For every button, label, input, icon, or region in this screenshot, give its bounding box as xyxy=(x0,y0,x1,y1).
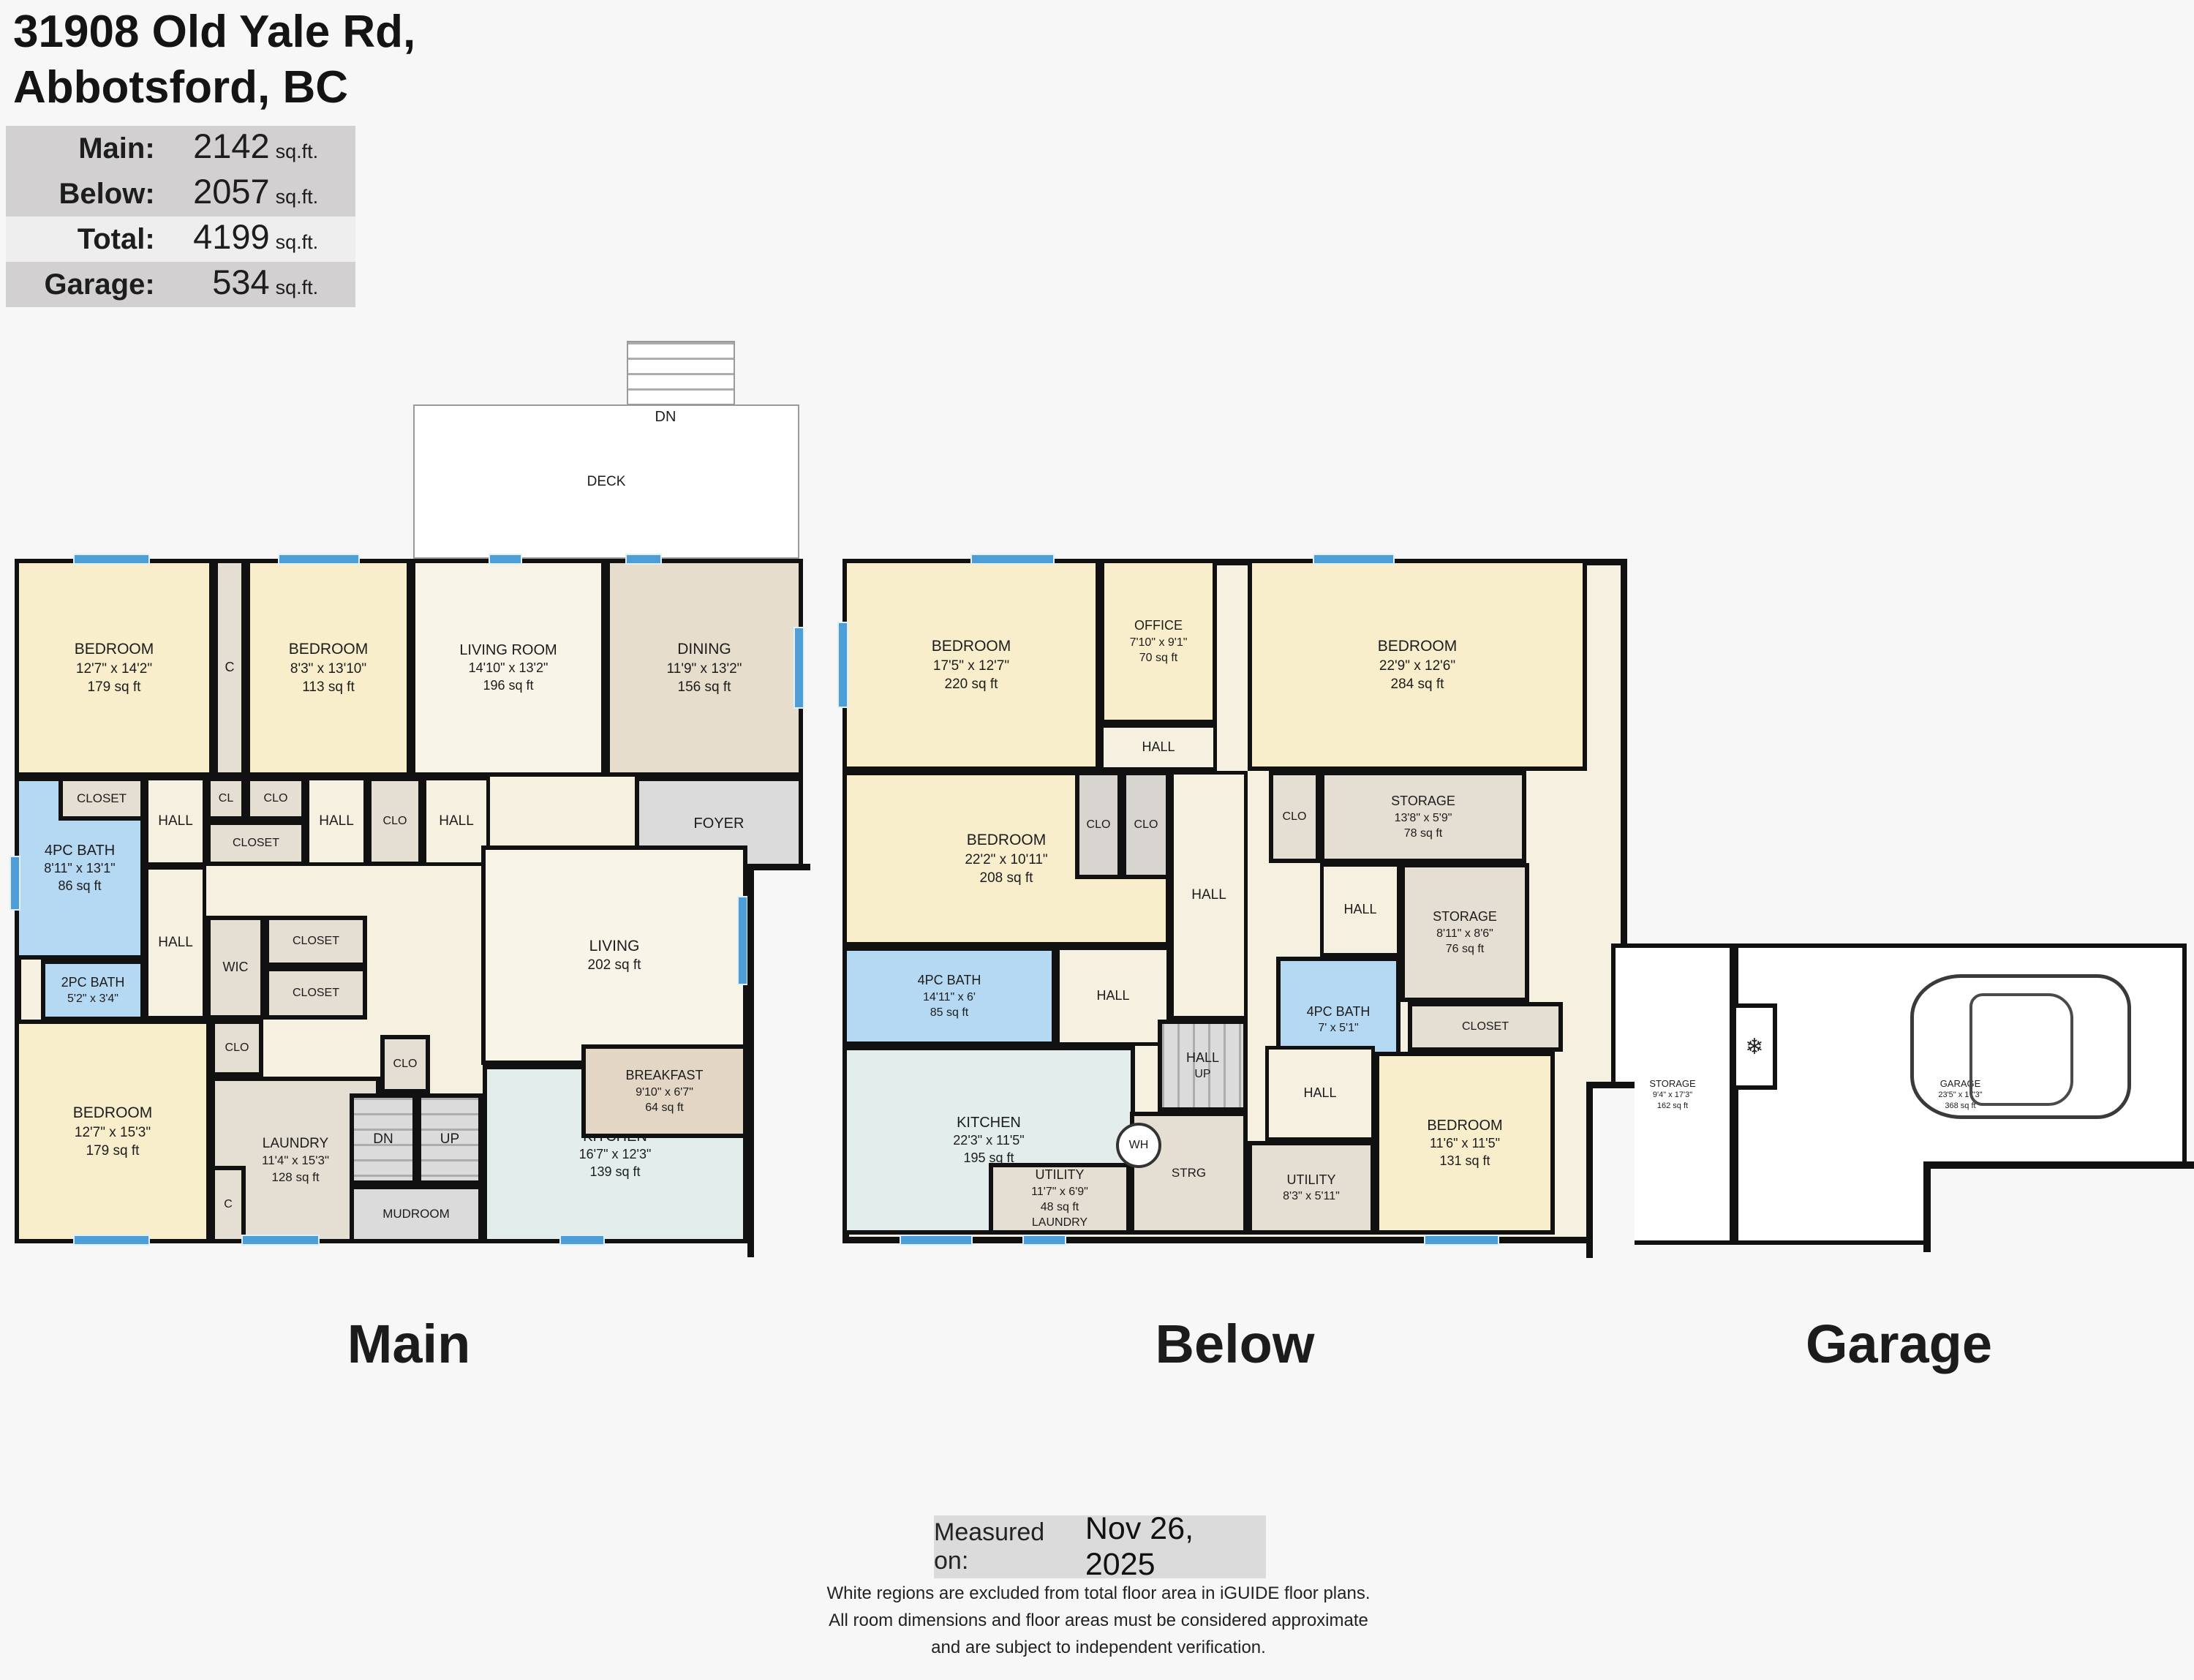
disclaimer-line-3: and are subject to independent verificat… xyxy=(733,1634,1464,1661)
disclaimer-line-2: All room dimensions and floor areas must… xyxy=(733,1607,1464,1634)
plan-title-below: Below xyxy=(842,1313,1627,1375)
garage-floorplan: STORAGE9'4" x 17'3"162 sq ftGARAGE23'5" … xyxy=(0,0,2194,1680)
disclaimer-text: White regions are excluded from total fl… xyxy=(733,1580,1464,1661)
measured-on-date: Nov 26, 2025 xyxy=(1085,1511,1266,1583)
measured-on-box: Measured on: Nov 26, 2025 xyxy=(934,1515,1266,1578)
floorplan-canvas: 31908 Old Yale Rd, Abbotsford, BC Main 2… xyxy=(0,0,2194,1680)
measured-on-label: Measured on: xyxy=(934,1518,1081,1575)
car-icon xyxy=(1910,974,2131,1119)
below-plan-edge-cutout xyxy=(1586,1082,1635,1258)
plan-title-garage: Garage xyxy=(1611,1313,2187,1375)
car-cabin xyxy=(1969,993,2073,1107)
main-plan-edge-cutout xyxy=(747,864,810,1257)
snowflake-icon: ❄ xyxy=(1745,1034,1763,1060)
garage-plan-notch xyxy=(1923,1161,2194,1252)
room-name: STORAGE xyxy=(1649,1077,1695,1090)
room-detail: 162 sq ft xyxy=(1657,1101,1688,1112)
room-detail: 9'4" x 17'3" xyxy=(1653,1090,1692,1101)
disclaimer-line-1: White regions are excluded from total fl… xyxy=(733,1580,1464,1607)
plan-title-main: Main xyxy=(15,1313,803,1375)
garage-freezer: ❄ xyxy=(1732,1003,1777,1090)
